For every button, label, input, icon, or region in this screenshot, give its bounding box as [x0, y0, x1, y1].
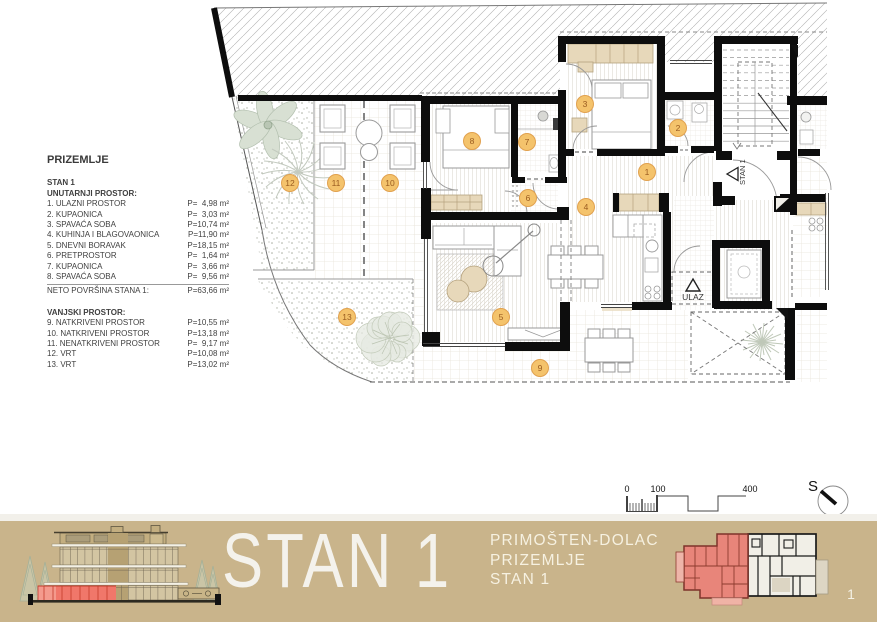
svg-text:1: 1 [645, 167, 650, 177]
svg-text:7: 7 [525, 137, 530, 147]
svg-text:5: 5 [499, 312, 504, 322]
svg-text:ULAZ: ULAZ [682, 292, 704, 302]
svg-text:0: 0 [624, 484, 629, 494]
svg-text:10: 10 [385, 178, 395, 188]
svg-text:13: 13 [342, 312, 352, 322]
svg-text:2: 2 [676, 123, 681, 133]
svg-text:S: S [808, 478, 818, 495]
svg-text:9: 9 [538, 363, 543, 373]
svg-text:3: 3 [583, 99, 588, 109]
svg-text:100: 100 [650, 484, 665, 494]
svg-text:8: 8 [470, 136, 475, 146]
svg-text:STAN 1: STAN 1 [738, 159, 747, 185]
svg-text:12: 12 [285, 178, 295, 188]
svg-text:11: 11 [332, 178, 341, 188]
svg-text:4: 4 [584, 202, 589, 212]
svg-text:6: 6 [526, 193, 531, 203]
svg-text:400: 400 [742, 484, 757, 494]
